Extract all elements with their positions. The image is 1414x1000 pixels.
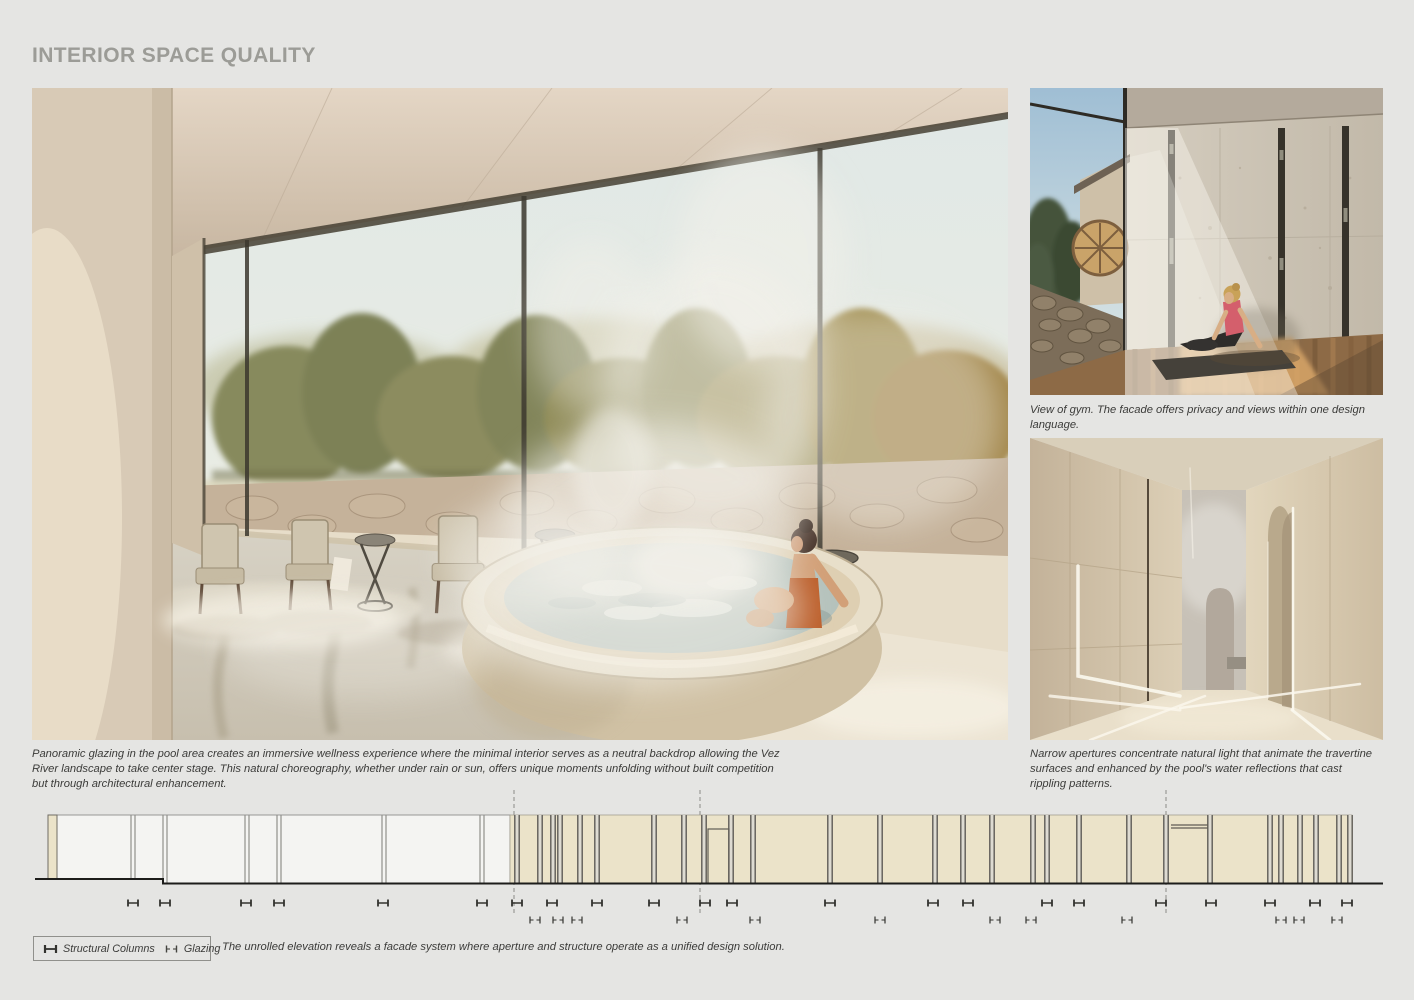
gym-caption: View of gym. The facade offers privacy a…: [1030, 403, 1383, 433]
legend-item-structural-columns: Structural Columns: [43, 943, 155, 955]
pool-render-figure: [32, 88, 1008, 740]
unrolled-elevation-drawing: [0, 782, 1414, 932]
page-title: INTERIOR SPACE QUALITY: [32, 44, 316, 68]
legend-item-glazing: Glazing: [164, 943, 221, 955]
corridor-render-image: [1030, 438, 1383, 740]
gym-render-figure: [1030, 88, 1383, 395]
structural-column-marker-icon: [43, 944, 58, 954]
gym-render-image: [1030, 88, 1383, 395]
legend-label-glazing: Glazing: [184, 943, 221, 955]
pool-render-image: [32, 88, 1008, 740]
legend-label-structural: Structural Columns: [63, 943, 155, 955]
elevation-legend: Structural Columns Glazing: [33, 936, 211, 961]
corridor-render-figure: [1030, 438, 1383, 740]
elevation-caption: The unrolled elevation reveals a facade …: [222, 940, 942, 955]
glazing-marker-icon: [164, 944, 179, 954]
